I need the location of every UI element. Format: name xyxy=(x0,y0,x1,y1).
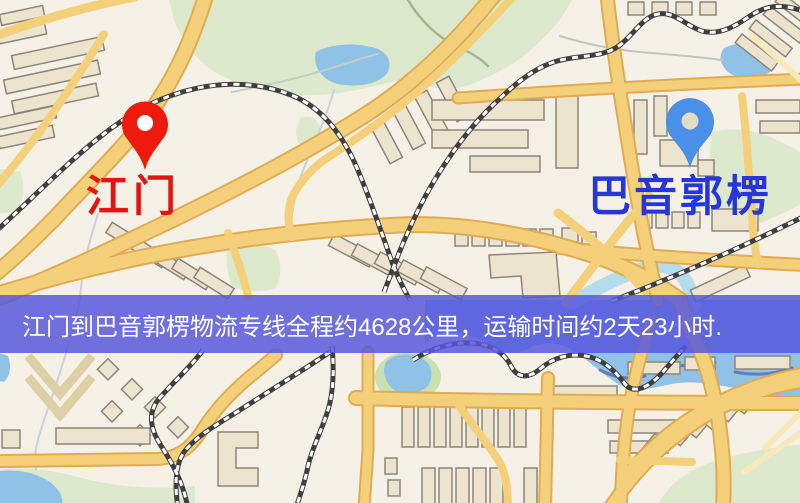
map-canvas xyxy=(0,0,800,503)
map-view[interactable]: 江门 巴音郭楞 江门到巴音郭楞物流专线全程约4628公里，运输时间约2天23小时… xyxy=(0,0,800,503)
route-info-banner: 江门到巴音郭楞物流专线全程约4628公里，运输时间约2天23小时. xyxy=(0,295,800,353)
route-info-text: 江门到巴音郭楞物流专线全程约4628公里，运输时间约2天23小时. xyxy=(0,307,722,342)
origin-city-label: 江门 xyxy=(86,176,180,219)
destination-city-label: 巴音郭楞 xyxy=(588,176,772,219)
